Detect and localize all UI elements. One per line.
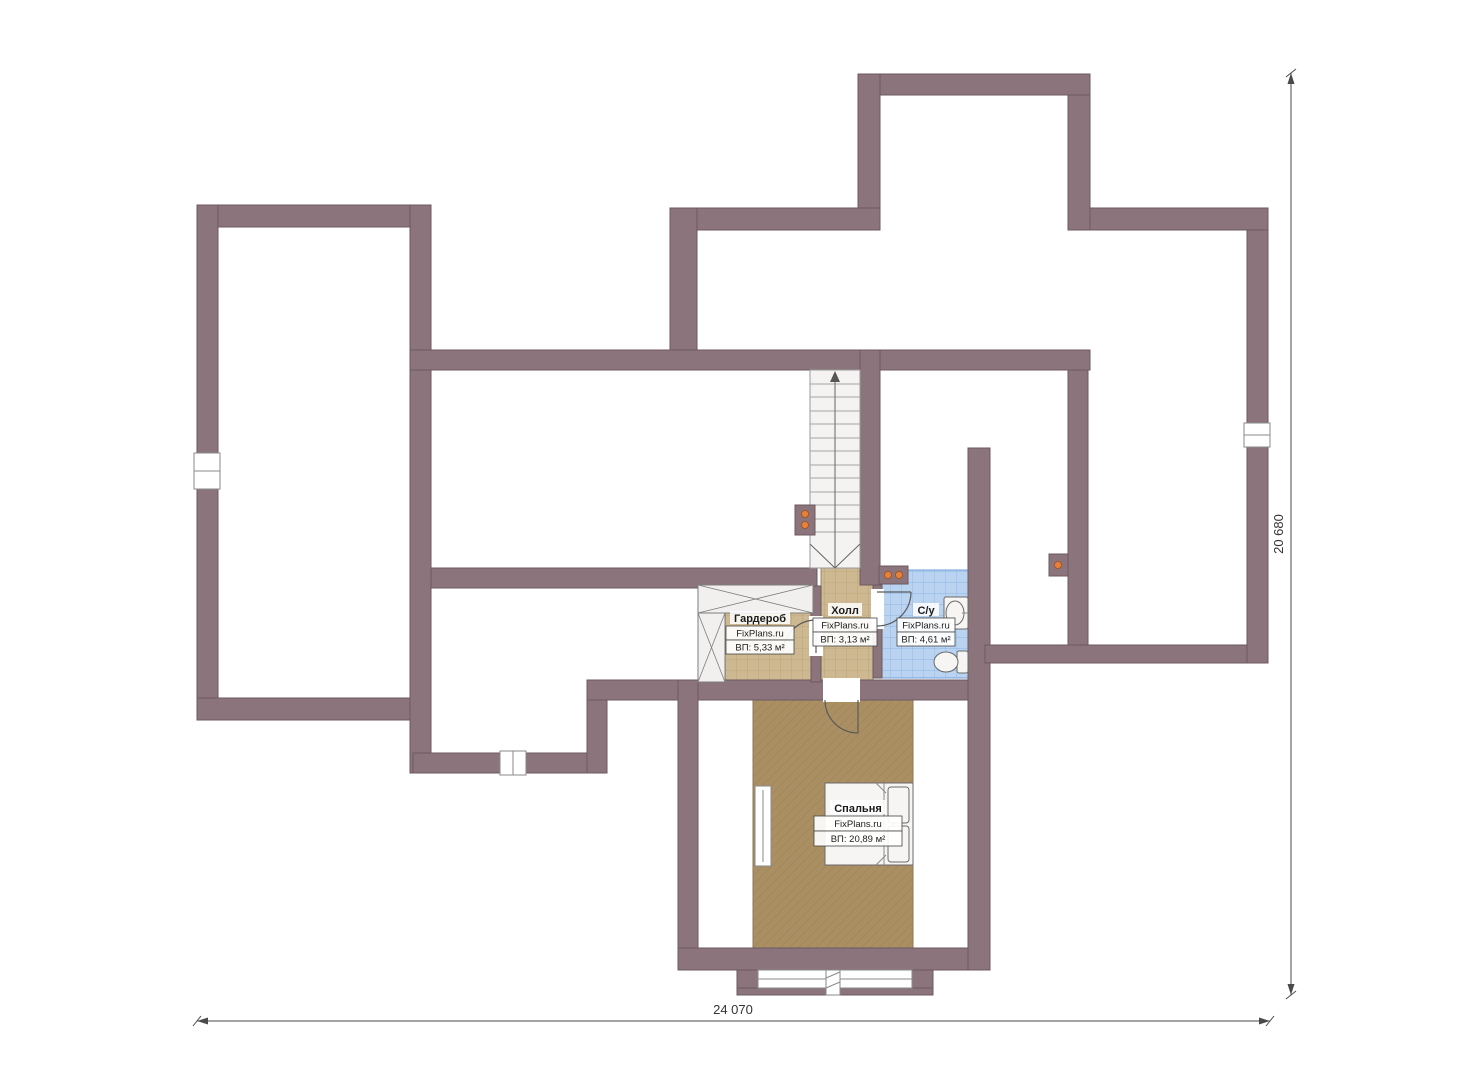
window-symbol-bedroom	[755, 786, 771, 866]
room-title: Гардероб	[734, 613, 786, 625]
room-label-wardrobe: Гардероб FixPlans.ru ВП: 5,33 м²	[726, 611, 794, 654]
room-title: Спальня	[834, 803, 882, 815]
dimension-bottom: 24 070	[193, 1002, 1274, 1026]
room-brand: FixPlans.ru	[834, 819, 882, 830]
room-brand: FixPlans.ru	[821, 621, 869, 632]
closet-symbol-top	[698, 585, 813, 613]
room-area: ВП: 3,13 м²	[820, 635, 869, 646]
staircase	[810, 370, 860, 568]
window-symbol-left	[194, 453, 220, 489]
heater-symbol-bathroom	[879, 566, 908, 584]
heater-symbol-stairs	[795, 505, 815, 535]
floor-plan-page: Гардероб FixPlans.ru ВП: 5,33 м² Холл Fi…	[0, 0, 1474, 1080]
closet-symbol-left	[698, 613, 725, 682]
room-brand: FixPlans.ru	[902, 621, 950, 632]
room-area: ВП: 4,61 м²	[901, 635, 950, 646]
room-area: ВП: 20,89 м²	[831, 834, 886, 845]
floor-plan: Гардероб FixPlans.ru ВП: 5,33 м² Холл Fi…	[0, 0, 1474, 1080]
toilet-symbol	[934, 651, 968, 673]
room-title: Холл	[831, 605, 859, 617]
dimension-height-label: 20 680	[1271, 514, 1286, 554]
room-brand: FixPlans.ru	[736, 629, 784, 640]
room-title: С/у	[917, 605, 935, 617]
dimension-right: 20 680	[1271, 69, 1296, 999]
walls	[197, 74, 1268, 995]
window-symbol-right	[1244, 423, 1270, 447]
window-symbol-bottom	[500, 751, 526, 775]
room-area: ВП: 5,33 м²	[735, 643, 784, 654]
heater-symbol-right-wall	[1049, 554, 1068, 576]
dimension-width-label: 24 070	[713, 1002, 753, 1017]
